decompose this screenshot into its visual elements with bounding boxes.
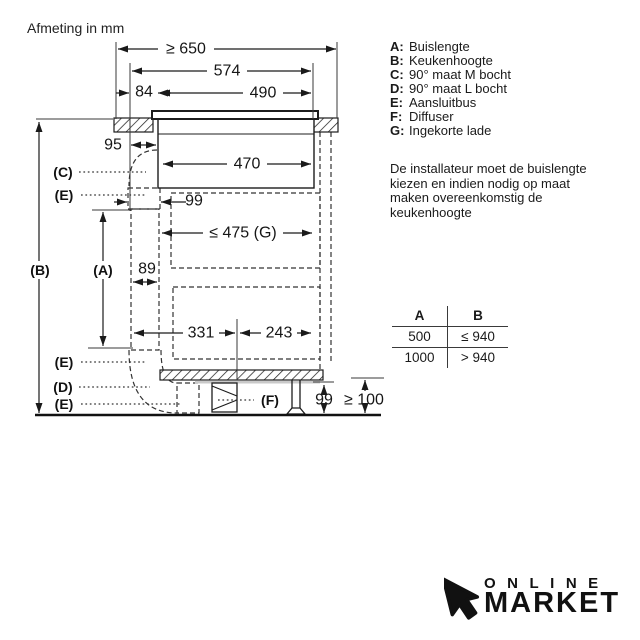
- dim-490: 490: [160, 85, 311, 102]
- label-F: (F): [261, 392, 279, 408]
- foot-base: [287, 408, 305, 414]
- table-header-row: A B: [392, 306, 508, 327]
- dim-89: 89: [133, 261, 157, 283]
- installer-note: De installateur moet de buislengte kieze…: [390, 162, 605, 220]
- dim-470-label: 470: [234, 156, 261, 173]
- cursor-icon: [444, 573, 486, 627]
- legend-label: Diffuser: [409, 110, 454, 124]
- label-D: (D): [53, 379, 72, 395]
- dim-99-bottom-label: 99: [315, 392, 333, 409]
- dim-99-top: 99: [114, 193, 203, 210]
- dim-650: ≥ 650: [118, 41, 336, 58]
- dim-100-label: ≥ 100: [344, 392, 384, 409]
- table-cell: ≤ 940: [448, 327, 508, 347]
- dim-574-label: 574: [214, 63, 241, 80]
- dim-331-label: 331: [188, 325, 215, 342]
- dim-A: (A): [89, 212, 118, 346]
- legend-item-G: G:Ingekorte lade: [390, 124, 511, 138]
- worktop-and-hob: [114, 111, 338, 188]
- legend-label: Aansluitbus: [409, 96, 476, 110]
- legend-item-E: E:Aansluitbus: [390, 96, 511, 110]
- legend-label: Buislengte: [409, 40, 470, 54]
- dim-84-label: 84: [135, 84, 153, 101]
- table-cell: 500: [392, 327, 448, 347]
- legend-item-B: B:Keukenhoogte: [390, 54, 511, 68]
- label-C: (C): [53, 164, 72, 180]
- legend-label: Keukenhoogte: [409, 54, 493, 68]
- table-cell: > 940: [448, 348, 508, 368]
- label-A: (A): [93, 262, 112, 278]
- legend-item-F: F:Diffuser: [390, 110, 511, 124]
- dim-475-label: ≤ 475 (G): [209, 225, 276, 242]
- label-E-bottom: (E): [55, 396, 74, 412]
- dim-650-label: ≥ 650: [166, 41, 206, 58]
- logo-line-market: MARKET: [484, 590, 620, 616]
- dim-331: 331: [134, 325, 235, 342]
- table-row: 1000 > 940: [392, 348, 508, 368]
- label-E-top: (E): [55, 187, 74, 203]
- table-header-a: A: [392, 306, 448, 326]
- dim-84: 84: [116, 84, 171, 101]
- m-bend-arc: [129, 150, 157, 186]
- legend-item-D: D:90° maat L bocht: [390, 82, 511, 96]
- legend-label: Ingekorte lade: [409, 124, 491, 138]
- worktop-right: [313, 118, 338, 132]
- dim-475: ≤ 475 (G): [162, 225, 312, 242]
- lower-drawer-outline: [173, 287, 320, 359]
- plinth-panel: [160, 370, 323, 380]
- table-row: 500 ≤ 940: [392, 327, 508, 348]
- dimension-diagram: ≥ 650 574 84 490 95 470: [0, 0, 640, 640]
- dim-89-label: 89: [138, 261, 156, 278]
- duct-length-table: A B 500 ≤ 940 1000 > 940: [392, 306, 508, 368]
- connector-box-top: [128, 188, 160, 209]
- screenshot-root: Afmeting in mm: [0, 0, 640, 640]
- dim-95-label: 95: [104, 137, 122, 154]
- dim-243-label: 243: [266, 325, 293, 342]
- worktop-left: [114, 118, 153, 132]
- table-cell: 1000: [392, 348, 448, 368]
- dim-243: 243: [240, 325, 311, 342]
- dim-99-top-label: 99: [185, 193, 203, 210]
- dim-574: 574: [132, 63, 311, 80]
- hob-glass-top: [152, 111, 318, 119]
- legend: A:Buislengte B:Keukenhoogte C:90° maat M…: [390, 40, 511, 138]
- legend-item-C: C:90° maat M bocht: [390, 68, 511, 82]
- label-B: (B): [30, 262, 49, 278]
- connector-box-bottom: [177, 383, 199, 413]
- dim-100: ≥ 100: [344, 380, 384, 413]
- label-E-mid: (E): [55, 354, 74, 370]
- legend-label: 90° maat M bocht: [409, 68, 511, 82]
- dim-99-bottom: 99: [315, 385, 333, 413]
- logo-text: ONLINE MARKET: [484, 575, 620, 616]
- dim-B: (B): [25, 122, 54, 413]
- dim-490-label: 490: [250, 85, 277, 102]
- table-header-b: B: [448, 306, 508, 326]
- duct-tube: [131, 209, 159, 350]
- hob-body: [158, 119, 314, 188]
- legend-label: 90° maat L bocht: [409, 82, 507, 96]
- legend-item-A: A:Buislengte: [390, 40, 511, 54]
- online-market-logo: ONLINE MARKET: [444, 571, 619, 631]
